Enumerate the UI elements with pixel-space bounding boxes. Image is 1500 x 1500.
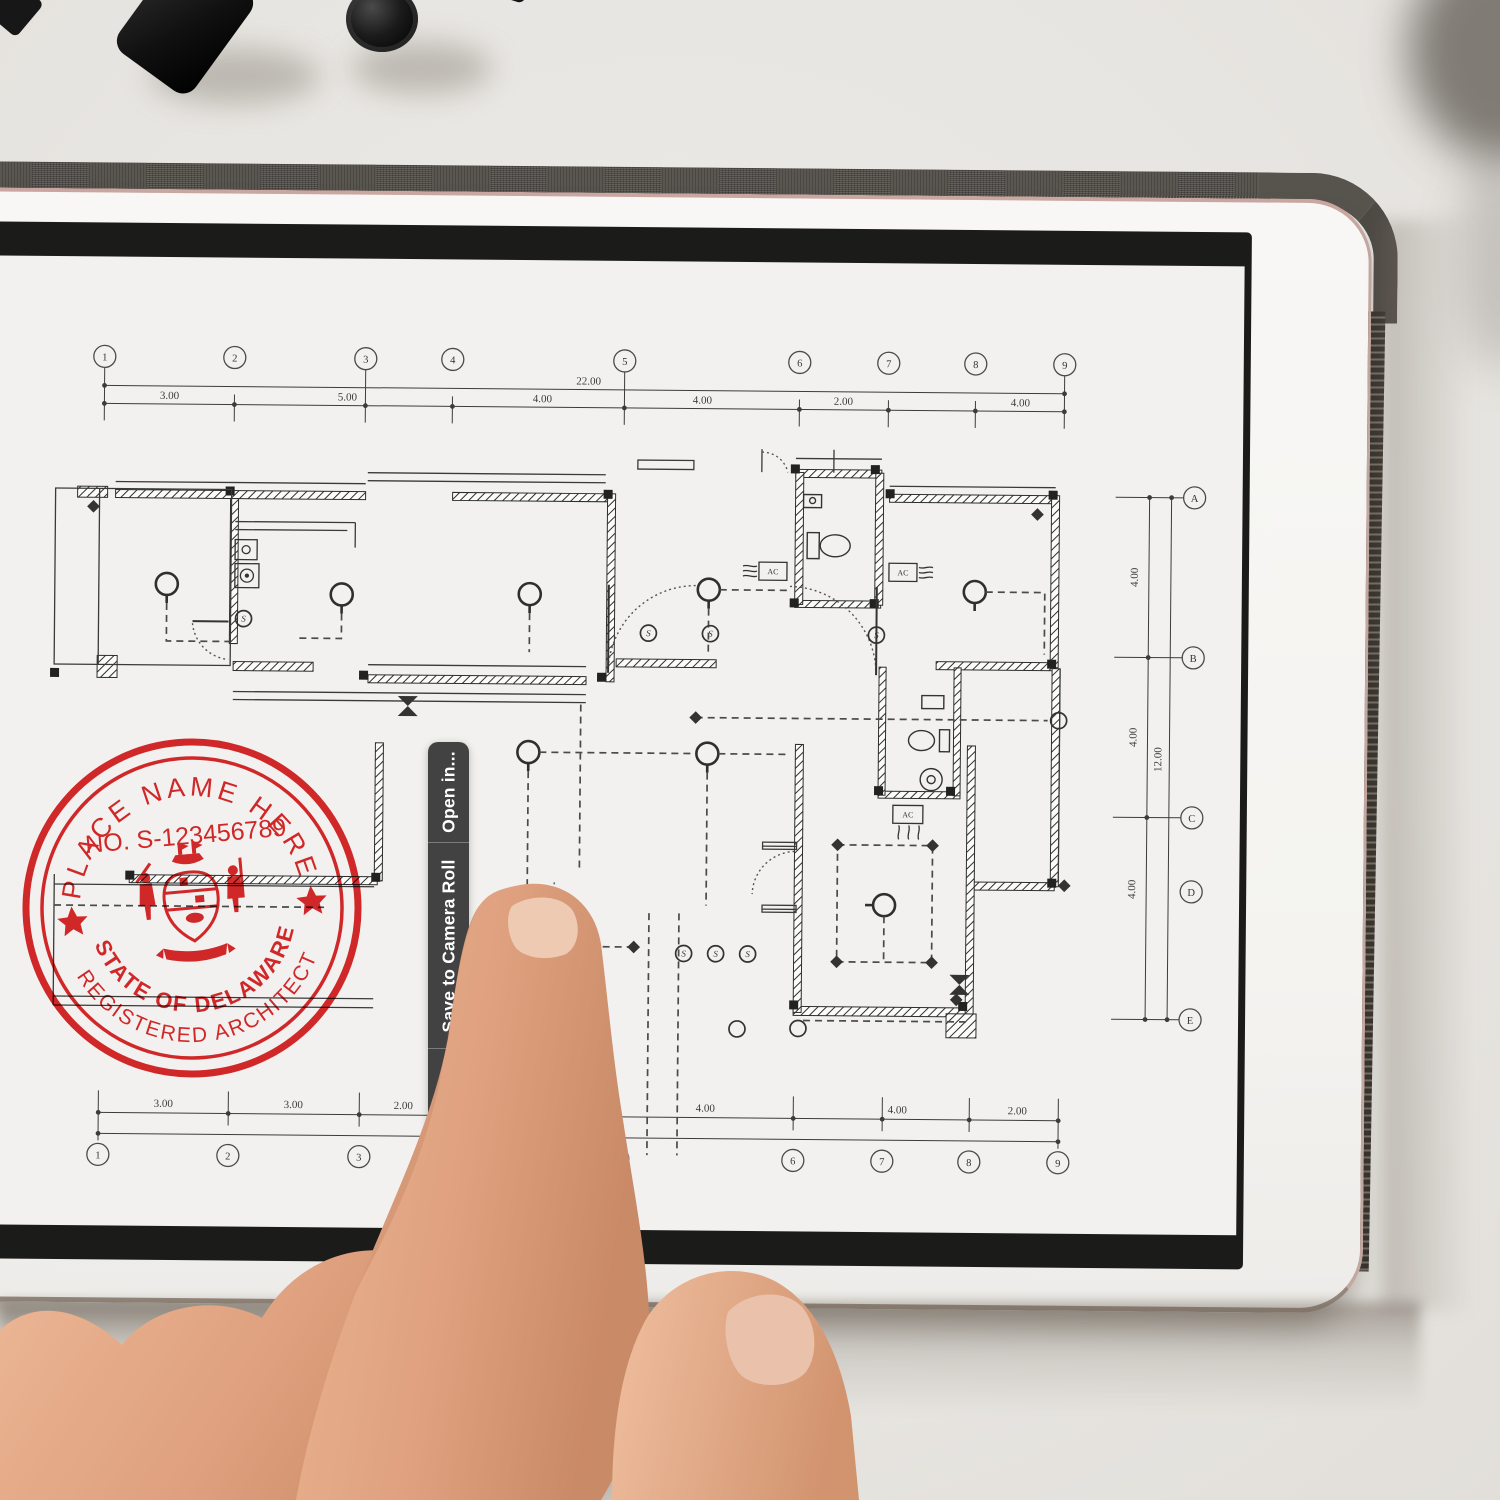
delaware-architect-stamp: PLACE NAME HERE NO. S-123456789 STATE OF… — [1, 717, 382, 1098]
menu-item-copy[interactable]: Copy — [428, 1048, 469, 1151]
bottom-grid-labels: 1 2 3 4 5 6 7 8 9 3.00 3.00 2.00 4.00 4.… — [95, 1097, 1061, 1169]
svg-text:E: E — [1187, 1016, 1194, 1027]
svg-text:1: 1 — [95, 1150, 100, 1161]
svg-text:22.00: 22.00 — [568, 1123, 593, 1135]
svg-text:2.00: 2.00 — [394, 1100, 414, 1112]
svg-text:4: 4 — [443, 1153, 449, 1164]
svg-text:A: A — [1191, 494, 1199, 505]
svg-text:4.00: 4.00 — [696, 1103, 716, 1115]
menu-pointer-arrow — [468, 929, 482, 953]
svg-text:C: C — [1188, 814, 1195, 825]
svg-text:S: S — [518, 939, 523, 949]
svg-text:S: S — [646, 628, 651, 638]
svg-text:D: D — [1187, 888, 1195, 899]
menu-item-save-label: Save to Camera Roll — [438, 859, 459, 1032]
svg-text:S: S — [874, 630, 879, 640]
svg-text:3.00: 3.00 — [284, 1099, 304, 1111]
tablet-right-shadow — [1382, 220, 1472, 1310]
svg-text:9: 9 — [1055, 1159, 1060, 1170]
svg-text:3.00: 3.00 — [154, 1098, 174, 1110]
svg-text:AC: AC — [902, 810, 913, 819]
right-grid-labels: A B C D E 4.00 4.00 4.00 12.00 — [1125, 493, 1199, 1027]
svg-text:5: 5 — [615, 1155, 620, 1166]
svg-text:3: 3 — [363, 355, 368, 366]
svg-text:2.00: 2.00 — [1008, 1105, 1028, 1117]
toilet-lower — [908, 695, 950, 790]
svg-text:12.00: 12.00 — [1152, 747, 1164, 772]
svg-text:3.00: 3.00 — [160, 390, 180, 402]
svg-text:4.00: 4.00 — [1129, 567, 1141, 587]
context-menu: Open in... Save to Camera Roll Copy — [428, 742, 469, 1151]
svg-text:S: S — [708, 629, 713, 639]
svg-text:2.00: 2.00 — [834, 396, 854, 408]
svg-text:1: 1 — [102, 352, 107, 363]
svg-text:S: S — [241, 614, 246, 624]
svg-text:8: 8 — [973, 360, 978, 371]
svg-text:4.00: 4.00 — [533, 393, 553, 405]
svg-text:AC: AC — [767, 567, 778, 576]
svg-text:AC: AC — [897, 568, 908, 577]
menu-item-copy-label: Copy — [438, 1078, 459, 1123]
svg-text:8: 8 — [966, 1158, 971, 1169]
scene: 1 2 3 4 5 6 7 8 9 3.00 5.00 4.00 4.00 2.… — [0, 0, 1500, 1500]
svg-text:S: S — [681, 948, 686, 958]
door-leaves — [192, 581, 877, 675]
svg-text:6: 6 — [797, 358, 802, 369]
svg-text:6: 6 — [790, 1156, 795, 1167]
svg-text:7: 7 — [879, 1157, 884, 1168]
svg-text:S: S — [713, 949, 718, 959]
svg-text:2: 2 — [225, 1151, 230, 1162]
svg-text:4.00: 4.00 — [693, 395, 713, 407]
svg-text:4.00: 4.00 — [888, 1104, 908, 1116]
svg-text:4: 4 — [450, 355, 456, 366]
svg-text:4.00: 4.00 — [1011, 397, 1031, 409]
menu-item-open-in-label: Open in... — [438, 751, 459, 833]
svg-text:4.00: 4.00 — [1126, 879, 1138, 899]
svg-text:4.00: 4.00 — [1127, 727, 1139, 747]
svg-text:5.00: 5.00 — [338, 391, 358, 403]
menu-item-open-in[interactable]: Open in... — [428, 742, 469, 842]
delaware-seal-icon — [133, 838, 248, 966]
menu-item-save-to-camera-roll[interactable]: Save to Camera Roll — [428, 842, 469, 1048]
top-grid-labels: 1 2 3 4 5 6 7 8 9 3.00 5.00 4.00 4.00 2.… — [102, 352, 1068, 409]
toilet-upper — [803, 494, 851, 558]
svg-text:S: S — [745, 949, 750, 959]
svg-text:7: 7 — [886, 359, 891, 370]
svg-text:5: 5 — [622, 357, 627, 368]
svg-text:B: B — [1190, 654, 1197, 665]
svg-text:3: 3 — [356, 1153, 361, 1164]
svg-text:9: 9 — [1062, 361, 1067, 372]
svg-text:2: 2 — [232, 354, 237, 365]
svg-text:22.00: 22.00 — [576, 376, 601, 388]
